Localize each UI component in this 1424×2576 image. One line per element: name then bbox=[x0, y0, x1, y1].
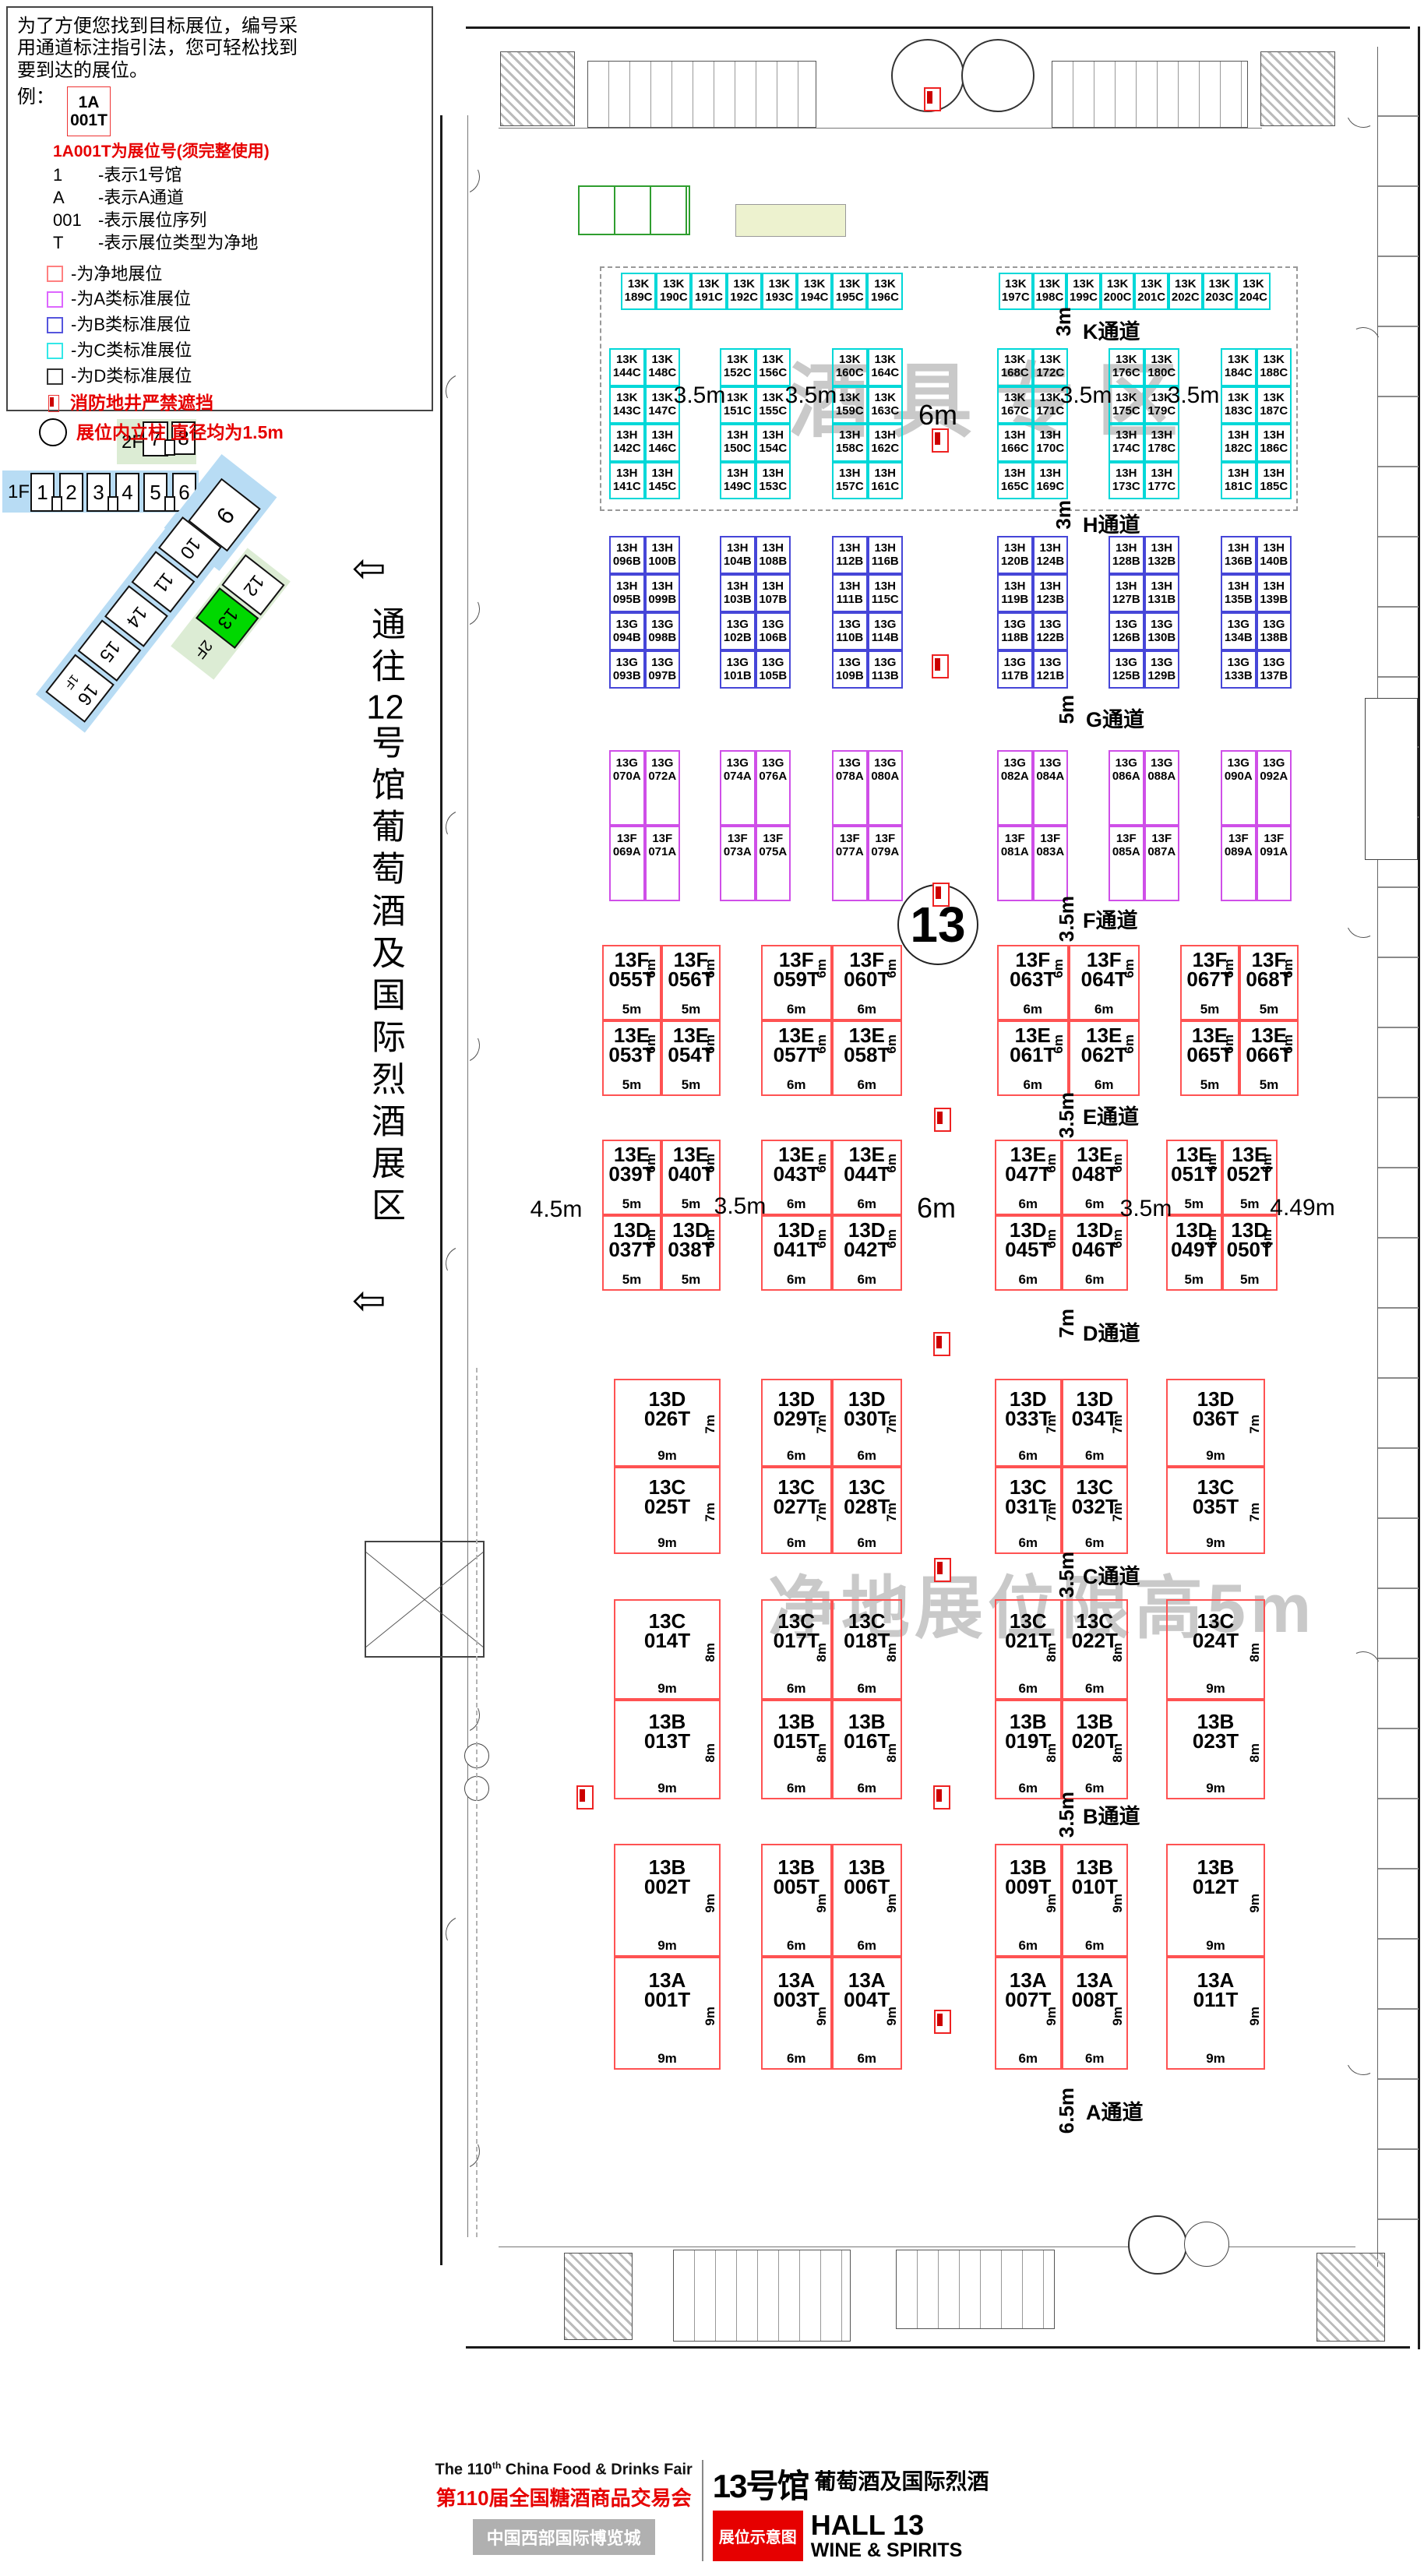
stairs-top-left bbox=[500, 51, 575, 126]
gap-dimension: 3.5m bbox=[1168, 382, 1220, 409]
booth-13E-039T: 13E039T6m5m bbox=[602, 1140, 661, 1215]
booth-13H-145C: 13H145C bbox=[645, 462, 681, 500]
booth-13F-077A: 13F077A bbox=[832, 826, 868, 901]
gap-dimension: 3.5m bbox=[714, 1193, 767, 1220]
booth-13C-021T: 13C021T8m6m bbox=[995, 1599, 1062, 1700]
booth-13K-144C: 13K144C bbox=[609, 348, 645, 386]
booth-13H-146C: 13H146C bbox=[645, 424, 681, 462]
booth-13H-182C: 13H182C bbox=[1221, 424, 1257, 462]
booth-13H-112B: 13H112B bbox=[832, 536, 868, 574]
booth-13K-188C: 13K188C bbox=[1257, 348, 1292, 386]
booth-13H-154C: 13H154C bbox=[756, 424, 791, 462]
booth-13G-126B: 13G126B bbox=[1109, 612, 1144, 650]
booth-13H-111B: 13H111B bbox=[832, 574, 868, 612]
legend-type-row: -为净地展位 bbox=[47, 264, 422, 284]
booth-13K-197C: 13K197C bbox=[999, 273, 1033, 310]
booth-13H-186C: 13H186C bbox=[1257, 424, 1292, 462]
booth-13K-203C: 13K203C bbox=[1203, 273, 1237, 310]
booth-13K-180C: 13K180C bbox=[1144, 348, 1180, 386]
legend-type-row: -为D类标准展位 bbox=[47, 366, 422, 386]
booth-13K-189C: 13K189C bbox=[621, 273, 656, 310]
wall-left bbox=[440, 115, 442, 2265]
door-arc bbox=[441, 1242, 485, 1285]
restroom-top-2 bbox=[1052, 61, 1248, 128]
booth-13F-085A: 13F085A bbox=[1109, 826, 1144, 901]
booth-13B-005T: 13B005T9m6m bbox=[761, 1844, 832, 1957]
door-arc bbox=[441, 1024, 485, 1067]
booth-13H-135B: 13H135B bbox=[1221, 574, 1257, 612]
aisle-label-H: H通道 bbox=[1083, 508, 1140, 538]
stairs-bottom-left bbox=[564, 2253, 633, 2340]
booth-13D-026T: 13D026T7m9m bbox=[614, 1379, 721, 1467]
booth-13G-090A: 13G090A bbox=[1221, 750, 1257, 826]
booth-13C-028T: 13C028T7m6m bbox=[832, 1467, 903, 1555]
booth-type-swatch bbox=[47, 291, 63, 308]
booth-13B-010T: 13B010T9m6m bbox=[1062, 1844, 1129, 1957]
booth-13D-030T: 13D030T7m6m bbox=[832, 1379, 903, 1467]
booth-13E-051T: 13E051T6m5m bbox=[1166, 1140, 1222, 1215]
aisle-label-B: B通道 bbox=[1083, 1799, 1140, 1830]
booth-13H-139B: 13H139B bbox=[1257, 574, 1292, 612]
booth-13F-081A: 13F081A bbox=[997, 826, 1033, 901]
legend-example-label: 例： bbox=[17, 86, 55, 108]
hall-subtitle-en: WINE & SPIRITS bbox=[811, 2540, 962, 2562]
booth-13C-022T: 13C022T8m6m bbox=[1062, 1599, 1129, 1700]
booth-13D-038T: 13D038T6m5m bbox=[661, 1215, 721, 1291]
booth-13H-119B: 13H119B bbox=[997, 574, 1033, 612]
booth-13C-032T: 13C032T7m6m bbox=[1062, 1467, 1129, 1555]
fire-hydrant-icon bbox=[932, 428, 949, 453]
booth-13A-008T: 13A008T9m6m bbox=[1062, 1957, 1129, 2070]
arrow-to-hall12-bottom: ⇦ bbox=[352, 1277, 386, 1324]
wall-top bbox=[466, 26, 1410, 29]
booth-13G-102B: 13G102B bbox=[720, 612, 756, 650]
aisle-width-F: 3.5m bbox=[1055, 896, 1079, 942]
right-room-block bbox=[1365, 698, 1418, 860]
booth-13G-098B: 13G098B bbox=[645, 612, 681, 650]
booth-13F-059T: 13F059T6m6m bbox=[761, 945, 832, 1020]
minimap-connector bbox=[51, 496, 62, 512]
legend-code-row: T-表示展位类型为净地 bbox=[53, 233, 422, 253]
booth-13F-069A: 13F069A bbox=[609, 826, 645, 901]
booth-13H-100B: 13H100B bbox=[645, 536, 681, 574]
booth-13K-183C: 13K183C bbox=[1221, 386, 1257, 425]
booth-13G-097B: 13G097B bbox=[645, 650, 681, 689]
booth-13B-006T: 13B006T9m6m bbox=[832, 1844, 903, 1957]
booth-type-swatch bbox=[47, 266, 63, 282]
booth-13E-062T: 13E062T6m6m bbox=[1069, 1020, 1140, 1096]
booth-13K-168C: 13K168C bbox=[997, 348, 1033, 386]
booth-13F-068T: 13F068T6m5m bbox=[1239, 945, 1299, 1020]
fire-hydrant-icon bbox=[933, 1332, 950, 1356]
booth-13B-002T: 13B002T9m9m bbox=[614, 1844, 721, 1957]
booth-13G-134B: 13G134B bbox=[1221, 612, 1257, 650]
booth-13C-014T: 13C014T8m9m bbox=[614, 1599, 721, 1700]
minimap-connector bbox=[164, 496, 175, 512]
booth-13C-024T: 13C024T8m9m bbox=[1166, 1599, 1265, 1700]
minimap-hall-2: 2 bbox=[59, 473, 83, 512]
booth-13H-115C: 13H115C bbox=[868, 574, 904, 612]
fire-hydrant-icon bbox=[932, 883, 950, 907]
minimap-connector bbox=[108, 496, 118, 512]
booth-13K-143C: 13K143C bbox=[609, 386, 645, 425]
restroom-top-1 bbox=[587, 61, 816, 128]
booth-13G-082A: 13G082A bbox=[997, 750, 1033, 826]
booth-13G-072A: 13G072A bbox=[645, 750, 681, 826]
booth-13H-173C: 13H173C bbox=[1109, 462, 1144, 500]
booth-13G-101B: 13G101B bbox=[720, 650, 756, 689]
booth-13G-094B: 13G094B bbox=[609, 612, 645, 650]
door-arc bbox=[441, 369, 485, 413]
booth-13B-013T: 13B013T8m9m bbox=[614, 1700, 721, 1800]
aisle-width-D: 7m bbox=[1055, 1309, 1079, 1338]
booth-13F-083A: 13F083A bbox=[1033, 826, 1069, 901]
booth-13C-035T: 13C035T7m9m bbox=[1166, 1467, 1265, 1555]
pillar-icon bbox=[39, 418, 67, 446]
minimap-green-2f-label: 2F bbox=[190, 636, 215, 662]
door-arc bbox=[441, 1693, 485, 1737]
booth-13H-136B: 13H136B bbox=[1221, 536, 1257, 574]
booth-13H-170C: 13H170C bbox=[1033, 424, 1069, 462]
booth-13A-004T: 13A004T9m6m bbox=[832, 1957, 903, 2070]
booth-13C-027T: 13C027T7m6m bbox=[761, 1467, 832, 1555]
floorplan-page: 为了方便您找到目标展位，编号采用通道标注指引法，您可轻松找到要到达的展位。 例：… bbox=[0, 0, 1424, 2576]
booth-13K-194C: 13K194C bbox=[797, 273, 832, 310]
booth-13G-084A: 13G084A bbox=[1033, 750, 1069, 826]
booth-13K-190C: 13K190C bbox=[656, 273, 691, 310]
stairs-top-right bbox=[1260, 51, 1335, 126]
booth-13K-160C: 13K160C bbox=[832, 348, 868, 386]
booth-13H-169C: 13H169C bbox=[1033, 462, 1069, 500]
booth-13H-096B: 13H096B bbox=[609, 536, 645, 574]
booth-13H-108B: 13H108B bbox=[756, 536, 791, 574]
booth-13H-124B: 13H124B bbox=[1033, 536, 1069, 574]
hall-title-en: HALL 13 bbox=[811, 2511, 962, 2540]
booth-13B-016T: 13B016T8m6m bbox=[832, 1700, 903, 1800]
door-arc bbox=[441, 587, 485, 631]
booth-13G-138B: 13G138B bbox=[1257, 612, 1292, 650]
booth-13G-122B: 13G122B bbox=[1033, 612, 1069, 650]
fair-title-en: The 110th China Food & Drinks Fair bbox=[435, 2460, 692, 2479]
booth-13F-091A: 13F091A bbox=[1257, 826, 1292, 901]
booth-13G-125B: 13G125B bbox=[1109, 650, 1144, 689]
arrow-to-hall12-top: ⇦ bbox=[352, 545, 386, 592]
booth-13A-011T: 13A011T9m9m bbox=[1166, 1957, 1265, 2070]
booth-13G-129B: 13G129B bbox=[1144, 650, 1180, 689]
booth-13K-201C: 13K201C bbox=[1134, 273, 1168, 310]
gap-dimension: 4.5m bbox=[530, 1196, 583, 1223]
booth-13H-150C: 13H150C bbox=[720, 424, 756, 462]
booth-13H-127B: 13H127B bbox=[1109, 574, 1144, 612]
gap-dimension: 3.5m bbox=[1120, 1196, 1172, 1222]
booth-13H-099B: 13H099B bbox=[645, 574, 681, 612]
legend-code-note: 1A001T为展位号(须完整使用) bbox=[53, 143, 422, 162]
booth-13E-066T: 13E066T6m5m bbox=[1239, 1020, 1299, 1096]
wall-bottom bbox=[466, 2346, 1410, 2349]
dashed-guideline bbox=[476, 1368, 478, 2237]
booth-13K-193C: 13K193C bbox=[762, 273, 797, 310]
booth-13H-153C: 13H153C bbox=[756, 462, 791, 500]
booth-13G-078A: 13G078A bbox=[832, 750, 868, 826]
booth-13G-117B: 13G117B bbox=[997, 650, 1033, 689]
revolving-door-right bbox=[961, 39, 1035, 112]
aisle-width-B: 3.5m bbox=[1055, 1792, 1079, 1838]
booth-13B-020T: 13B020T8m6m bbox=[1062, 1700, 1129, 1800]
booth-13F-071A: 13F071A bbox=[645, 826, 681, 901]
booth-13H-103B: 13H103B bbox=[720, 574, 756, 612]
booth-13A-003T: 13A003T9m6m bbox=[761, 1957, 832, 2070]
hall12-direction-note: 通往12号馆葡萄酒及国际烈酒展区 bbox=[360, 606, 410, 1229]
booth-13K-195C: 13K195C bbox=[832, 273, 867, 310]
booth-13H-157C: 13H157C bbox=[832, 462, 868, 500]
booth-13H-104B: 13H104B bbox=[720, 536, 756, 574]
booth-13H-181C: 13H181C bbox=[1221, 462, 1257, 500]
hall-title-cn: 13号馆 bbox=[713, 2460, 809, 2507]
booth-13K-159C: 13K159C bbox=[832, 386, 868, 425]
booth-13D-041T: 13D041T6m6m bbox=[761, 1215, 832, 1291]
booth-13G-086A: 13G086A bbox=[1109, 750, 1144, 826]
booth-13H-178C: 13H178C bbox=[1144, 424, 1180, 462]
booth-13H-165C: 13H165C bbox=[997, 462, 1033, 500]
booth-13K-191C: 13K191C bbox=[691, 273, 726, 310]
aisle-width-C: 3.5m bbox=[1055, 1552, 1079, 1598]
fire-hydrant-icon bbox=[48, 395, 59, 412]
booth-13B-023T: 13B023T8m9m bbox=[1166, 1700, 1265, 1800]
service-strip bbox=[735, 204, 846, 237]
legend-intro: 为了方便您找到目标展位，编号采用通道标注指引法，您可轻松找到要到达的展位。 bbox=[17, 16, 422, 82]
booth-13E-058T: 13E058T6m6m bbox=[832, 1020, 903, 1096]
booth-13H-149C: 13H149C bbox=[720, 462, 756, 500]
booth-type-swatch bbox=[47, 343, 63, 359]
legend-panel: 为了方便您找到目标展位，编号采用通道标注指引法，您可轻松找到要到达的展位。 例：… bbox=[6, 6, 433, 411]
booth-13D-033T: 13D033T7m6m bbox=[995, 1379, 1062, 1467]
door-arc bbox=[441, 1912, 485, 1955]
booth-13K-152C: 13K152C bbox=[720, 348, 756, 386]
fire-hydrant-icon bbox=[934, 2010, 951, 2034]
booth-13C-031T: 13C031T7m6m bbox=[995, 1467, 1062, 1555]
booth-type-swatch bbox=[47, 317, 63, 333]
booth-13D-036T: 13D036T7m9m bbox=[1166, 1379, 1265, 1467]
booth-13H-177C: 13H177C bbox=[1144, 462, 1180, 500]
booth-13D-046T: 13D046T6m6m bbox=[1062, 1215, 1129, 1291]
legend-code-row: 1-表示1号馆 bbox=[53, 165, 422, 185]
booth-13D-029T: 13D029T7m6m bbox=[761, 1379, 832, 1467]
booth-13C-025T: 13C025T7m9m bbox=[614, 1467, 721, 1555]
restroom-bottom-1 bbox=[673, 2250, 851, 2342]
booth-13F-055T: 13F055T6m5m bbox=[602, 945, 661, 1020]
aisle-label-G: G通道 bbox=[1086, 703, 1144, 733]
booth-13E-048T: 13E048T6m6m bbox=[1062, 1140, 1129, 1215]
booth-13H-131B: 13H131B bbox=[1144, 574, 1180, 612]
booth-13D-042T: 13D042T6m6m bbox=[832, 1215, 903, 1291]
legend-code-row: A-表示A通道 bbox=[53, 188, 422, 208]
booth-13G-074A: 13G074A bbox=[720, 750, 756, 826]
booth-13E-052T: 13E052T6m5m bbox=[1222, 1140, 1278, 1215]
door-arc bbox=[441, 2130, 485, 2173]
booth-13H-128B: 13H128B bbox=[1109, 536, 1144, 574]
hall-subtitle-cn: 葡萄酒及国际烈酒 bbox=[815, 2465, 989, 2496]
booth-13F-060T: 13F060T6m6m bbox=[832, 945, 903, 1020]
service-grid bbox=[578, 185, 690, 235]
gap-dimension: 4.49m bbox=[1270, 1195, 1334, 1221]
booth-13H-095B: 13H095B bbox=[609, 574, 645, 612]
booth-13E-053T: 13E053T6m5m bbox=[602, 1020, 661, 1096]
booth-13G-093B: 13G093B bbox=[609, 650, 645, 689]
legend-pillar-note: 展位内立柱 直径均为1.5m bbox=[39, 418, 422, 446]
venue-name: 中国西部国际博览城 bbox=[473, 2519, 655, 2555]
booth-13G-137B: 13G137B bbox=[1257, 650, 1292, 689]
booth-13G-109B: 13G109B bbox=[832, 650, 868, 689]
fire-hydrant-icon bbox=[924, 87, 941, 111]
booth-13G-070A: 13G070A bbox=[609, 750, 645, 826]
booth-13H-185C: 13H185C bbox=[1257, 462, 1292, 500]
booth-13E-047T: 13E047T6m6m bbox=[995, 1140, 1062, 1215]
booth-13H-132B: 13H132B bbox=[1144, 536, 1180, 574]
booth-13K-198C: 13K198C bbox=[1033, 273, 1067, 310]
booth-13K-167C: 13K167C bbox=[997, 386, 1033, 425]
aisle-label-K: K通道 bbox=[1083, 315, 1140, 345]
booth-13K-204C: 13K204C bbox=[1236, 273, 1271, 310]
booth-13K-192C: 13K192C bbox=[727, 273, 762, 310]
fire-hydrant-icon bbox=[934, 1108, 951, 1132]
booth-13F-079A: 13F079A bbox=[868, 826, 904, 901]
booth-13G-118B: 13G118B bbox=[997, 612, 1033, 650]
restroom-bottom-2 bbox=[896, 2250, 1055, 2329]
revolving-door-bottom bbox=[1128, 2215, 1187, 2275]
booth-13K-202C: 13K202C bbox=[1168, 273, 1203, 310]
aisle-width-H: 3m bbox=[1052, 500, 1076, 530]
aisle-label-A: A通道 bbox=[1086, 2095, 1144, 2126]
booth-13C-018T: 13C018T8m6m bbox=[832, 1599, 903, 1700]
booth-13F-073A: 13F073A bbox=[720, 826, 756, 901]
gap-dimension: 3.5m bbox=[674, 382, 726, 409]
booth-13E-043T: 13E043T6m6m bbox=[761, 1140, 832, 1215]
booth-13H-166C: 13H166C bbox=[997, 424, 1033, 462]
booth-13D-049T: 13D049T6m5m bbox=[1166, 1215, 1222, 1291]
booth-13F-075A: 13F075A bbox=[756, 826, 791, 901]
legend-example-booth: 1A 001T bbox=[67, 86, 111, 136]
booth-13G-092A: 13G092A bbox=[1257, 750, 1292, 826]
booth-13K-148C: 13K148C bbox=[645, 348, 681, 386]
booth-13K-187C: 13K187C bbox=[1257, 386, 1292, 425]
booth-13E-065T: 13E065T6m5m bbox=[1180, 1020, 1239, 1096]
booth-13K-199C: 13K199C bbox=[1066, 273, 1101, 310]
door-circle-bottom bbox=[1184, 2222, 1229, 2267]
booth-13G-105B: 13G105B bbox=[756, 650, 791, 689]
aisle-label-D: D通道 bbox=[1083, 1316, 1140, 1347]
booth-13G-121B: 13G121B bbox=[1033, 650, 1069, 689]
booth-13G-133B: 13G133B bbox=[1221, 650, 1257, 689]
booth-13G-080A: 13G080A bbox=[868, 750, 904, 826]
door-arc bbox=[441, 155, 485, 199]
aisle-label-C: C通道 bbox=[1083, 1559, 1140, 1590]
gap-dimension: 3.5m bbox=[1060, 382, 1112, 409]
booth-13E-040T: 13E040T6m5m bbox=[661, 1140, 721, 1215]
gap-dimension: 3.5m bbox=[785, 382, 837, 409]
booth-13H-142C: 13H142C bbox=[609, 424, 645, 462]
booth-13K-164C: 13K164C bbox=[868, 348, 904, 386]
booth-13A-001T: 13A001T9m9m bbox=[614, 1957, 721, 2070]
booth-13G-130B: 13G130B bbox=[1144, 612, 1180, 650]
booth-13F-056T: 13F056T6m5m bbox=[661, 945, 721, 1020]
fire-hydrant-icon bbox=[932, 654, 949, 678]
door-arc bbox=[441, 805, 485, 849]
booth-13H-158C: 13H158C bbox=[832, 424, 868, 462]
map-type-badge: 展位示意图 bbox=[713, 2511, 803, 2561]
aisle-width-E: 3.5m bbox=[1055, 1092, 1079, 1138]
minimap-1f-label: 1F bbox=[8, 481, 30, 503]
booth-13D-045T: 13D045T6m6m bbox=[995, 1215, 1062, 1291]
booth-13G-088A: 13G088A bbox=[1144, 750, 1180, 826]
booth-13F-067T: 13F067T6m5m bbox=[1180, 945, 1239, 1020]
fair-title-cn: 第110届全国糖酒商品交易会 bbox=[436, 2483, 692, 2511]
footer-divider bbox=[702, 2460, 703, 2561]
booth-13B-019T: 13B019T8m6m bbox=[995, 1700, 1062, 1800]
booth-13H-116B: 13H116B bbox=[868, 536, 904, 574]
booth-13K-196C: 13K196C bbox=[867, 273, 902, 310]
fire-hydrant-icon bbox=[934, 1558, 951, 1582]
fire-hydrant-icon bbox=[933, 1785, 950, 1810]
aisle-label-F: F通道 bbox=[1083, 904, 1138, 934]
wall-top-inner bbox=[499, 128, 1262, 129]
legend-code-row: 001-表示展位序列 bbox=[53, 210, 422, 231]
booth-13H-120B: 13H120B bbox=[997, 536, 1033, 574]
booth-13K-156C: 13K156C bbox=[756, 348, 791, 386]
booth-13D-050T: 13D050T6m5m bbox=[1222, 1215, 1278, 1291]
aisle-width-K: 3m bbox=[1052, 307, 1076, 337]
booth-13G-106B: 13G106B bbox=[756, 612, 791, 650]
legend-type-row: -为B类标准展位 bbox=[47, 315, 422, 335]
booth-13B-012T: 13B012T9m9m bbox=[1166, 1844, 1265, 1957]
booth-13H-107B: 13H107B bbox=[756, 574, 791, 612]
booth-13F-064T: 13F064T6m6m bbox=[1069, 945, 1140, 1020]
booth-13K-172C: 13K172C bbox=[1033, 348, 1069, 386]
booth-13K-175C: 13K175C bbox=[1109, 386, 1144, 425]
booth-13D-034T: 13D034T7m6m bbox=[1062, 1379, 1129, 1467]
fire-hydrant-icon bbox=[576, 1785, 594, 1810]
aisle-label-E: E通道 bbox=[1083, 1100, 1139, 1130]
booth-13E-044T: 13E044T6m6m bbox=[832, 1140, 903, 1215]
booth-13E-061T: 13E061T6m6m bbox=[997, 1020, 1069, 1096]
booth-13G-114B: 13G114B bbox=[868, 612, 904, 650]
booth-13B-009T: 13B009T9m6m bbox=[995, 1844, 1062, 1957]
booth-13K-163C: 13K163C bbox=[868, 386, 904, 425]
legend-type-row: -为C类标准展位 bbox=[47, 340, 422, 361]
booth-13A-007T: 13A007T9m6m bbox=[995, 1957, 1062, 2070]
booth-13E-054T: 13E054T6m5m bbox=[661, 1020, 721, 1096]
booth-13C-017T: 13C017T8m6m bbox=[761, 1599, 832, 1700]
booth-type-swatch bbox=[47, 368, 63, 385]
gap-dimension: 6m bbox=[918, 399, 957, 432]
booth-13F-063T: 13F063T6m6m bbox=[997, 945, 1069, 1020]
footer: The 110th China Food & Drinks Fair 第110届… bbox=[0, 2460, 1424, 2561]
elevator-block bbox=[365, 1541, 485, 1658]
booth-13H-141C: 13H141C bbox=[609, 462, 645, 500]
booth-13D-037T: 13D037T6m5m bbox=[602, 1215, 661, 1291]
minimap-hall-4: 4 bbox=[115, 473, 139, 512]
booth-13F-087A: 13F087A bbox=[1144, 826, 1180, 901]
stairs-bottom-right bbox=[1316, 2253, 1385, 2342]
legend-fire-note: 消防地井严禁遮挡 bbox=[48, 393, 422, 414]
booth-13H-174C: 13H174C bbox=[1109, 424, 1144, 462]
booth-13K-184C: 13K184C bbox=[1221, 348, 1257, 386]
booth-13G-076A: 13G076A bbox=[756, 750, 791, 826]
booth-13K-176C: 13K176C bbox=[1109, 348, 1144, 386]
booth-13H-162C: 13H162C bbox=[868, 424, 904, 462]
aisle-width-G: 5m bbox=[1055, 695, 1079, 724]
booth-13H-161C: 13H161C bbox=[868, 462, 904, 500]
booth-13F-089A: 13F089A bbox=[1221, 826, 1257, 901]
